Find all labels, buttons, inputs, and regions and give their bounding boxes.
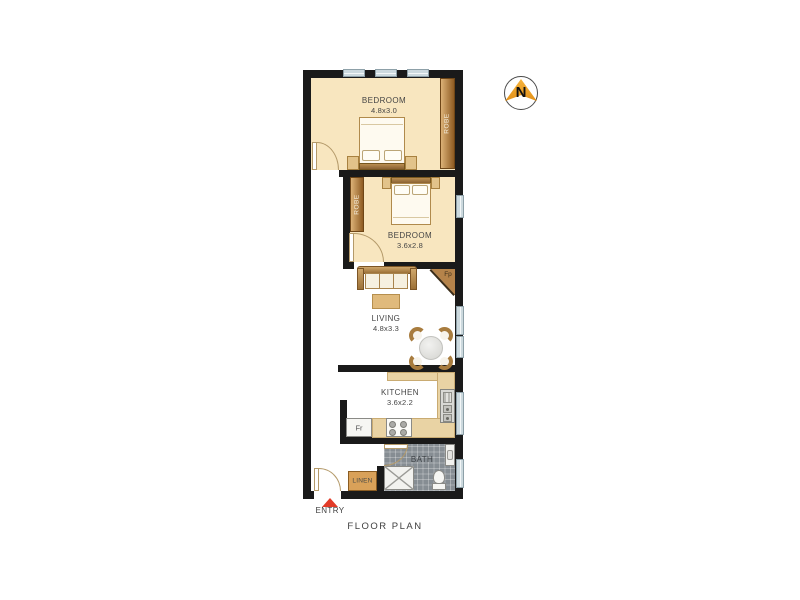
window-top-3: [407, 69, 429, 77]
window-living-1: [456, 306, 464, 335]
cooktop-burner-3: [389, 429, 396, 436]
cooktop-burner-2: [400, 421, 407, 428]
bedroom2-name: BEDROOM: [388, 231, 432, 241]
entry-label: ENTRY: [316, 506, 345, 515]
kitchen-dims: 3.6x2.2: [381, 398, 419, 407]
toilet-bowl: [433, 470, 445, 484]
outer-wall-bottom-right: [341, 491, 463, 499]
bedroom1-robe-label: ROBE: [444, 113, 451, 133]
linen-cupboard: LINEN: [348, 471, 377, 491]
bath-name: BATH: [411, 455, 433, 465]
window-living-2: [456, 336, 464, 358]
bedroom1-bed: [359, 117, 405, 170]
shower: [384, 466, 414, 490]
kitchen-name: KITCHEN: [381, 388, 419, 398]
living-label: LIVING 4.8x3.3: [372, 314, 401, 333]
compass-north-label: N: [504, 84, 538, 101]
window-bedroom2: [456, 195, 464, 218]
coffee-table: [372, 294, 400, 309]
fridge: Fr: [346, 418, 372, 437]
bath-basin: [447, 450, 453, 460]
outer-wall-bottom-left: [303, 491, 314, 499]
bedroom2-robe-label: ROBE: [354, 194, 361, 214]
bedroom2-dims: 3.6x2.8: [388, 241, 432, 250]
fireplace-label: Fp: [444, 271, 452, 278]
bedroom1-name: BEDROOM: [362, 96, 406, 106]
dining-table: [419, 336, 443, 360]
shower-x-icon: [384, 466, 414, 490]
toilet-tank: [432, 483, 446, 490]
oven: [440, 389, 455, 423]
cooktop-burner-1: [389, 421, 396, 428]
bedroom1-label: BEDROOM 4.8x3.0: [362, 96, 406, 115]
bedroom2-robe: ROBE: [350, 177, 364, 232]
bedroom2-label: BEDROOM 3.6x2.8: [388, 231, 432, 250]
outer-wall-left: [303, 70, 311, 499]
linen-label: LINEN: [352, 478, 372, 485]
bath-label: BATH: [411, 455, 433, 465]
floor-plan-page: { "title": "FLOOR PLAN", "compass": { "n…: [0, 0, 800, 600]
bedroom1-nightstand-right: [405, 156, 417, 170]
plan-title: FLOOR PLAN: [347, 521, 422, 532]
living-dims: 4.8x3.3: [372, 324, 401, 333]
bedroom1-nightstand-left: [347, 156, 359, 170]
wall-kitchen-bath: [340, 437, 455, 444]
bedroom2-nightstand-right: [431, 177, 440, 189]
bedroom1-robe: ROBE: [440, 78, 455, 169]
bedroom1-dims: 4.8x3.0: [362, 106, 406, 115]
cooktop-burner-4: [400, 429, 407, 436]
living-name: LIVING: [372, 314, 401, 324]
window-bath: [456, 459, 464, 488]
living-sofa: [357, 266, 417, 290]
bedroom2-bed: [391, 177, 431, 225]
kitchen-label: KITCHEN 3.6x2.2: [381, 388, 419, 407]
window-top-1: [343, 69, 365, 77]
wall-bedroom1-divider: [339, 170, 455, 177]
fridge-label: Fr: [355, 423, 362, 432]
entry-door-arc: [319, 468, 341, 491]
bedroom2-nightstand-left: [382, 177, 391, 189]
wall-bedroom2-bottom-left: [343, 262, 354, 269]
window-top-2: [375, 69, 397, 77]
window-kitchen: [456, 392, 464, 435]
